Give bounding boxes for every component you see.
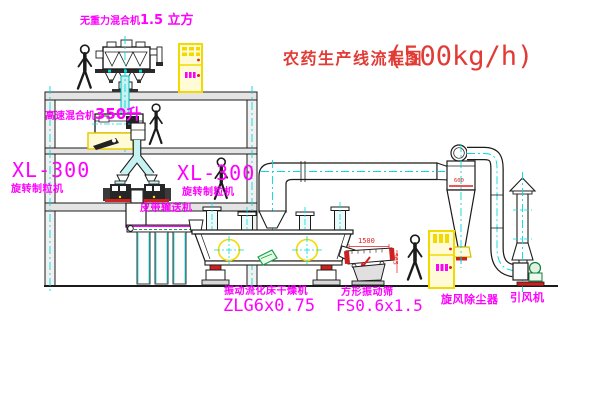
label-dryer-model: ZLG6x0.75 [223, 298, 315, 315]
belt-conveyor-drawing [127, 225, 197, 284]
label-granulator-right-model: XL-300 [177, 163, 255, 183]
exhaust-duct [259, 160, 452, 230]
person-ground [408, 235, 422, 279]
gravity-mixer-size: 1.5 立方 [140, 13, 194, 28]
label-granulator-right-type: 旋转制粒机 [182, 188, 235, 198]
control-cabinet-2 [429, 231, 454, 288]
dim-screen-length: 1500 [358, 238, 375, 245]
dim-screen-side: 565 [392, 253, 399, 265]
label-high-speed-mixer: 高速混合机350升 [45, 107, 141, 122]
person-roof [78, 45, 91, 88]
label-granulator-left-model: XL-300 [12, 160, 90, 180]
gravity-mixer-name: 无重力混合机 [80, 16, 140, 27]
induced-draft-fan-drawing [513, 263, 544, 287]
label-belt-conveyor: 皮带输送机 [140, 204, 193, 214]
flow-diagram-canvas: 无重力混合机1.5 立方 农药生产线流程图 (500kg/h) 高速混合机350… [0, 0, 600, 403]
diagram-capacity: (500kg/h) [387, 43, 533, 70]
vibrating-screen-drawing [339, 244, 397, 285]
high-speed-mixer-name: 高速混合机 [45, 111, 95, 122]
label-granulator-left-type: 旋转制粒机 [11, 185, 64, 195]
label-fan: 引风机 [510, 292, 545, 303]
person-second-floor [150, 104, 162, 144]
label-gravity-mixer: 无重力混合机1.5 立方 [80, 14, 194, 27]
label-screen-model: FS0.6x1.5 [336, 298, 423, 314]
high-speed-mixer-size: 350升 [95, 105, 141, 123]
control-cabinet-1 [179, 44, 202, 92]
cyclone-marking: 600 [454, 179, 464, 185]
label-cyclone: 旋风除尘器 [441, 294, 499, 305]
